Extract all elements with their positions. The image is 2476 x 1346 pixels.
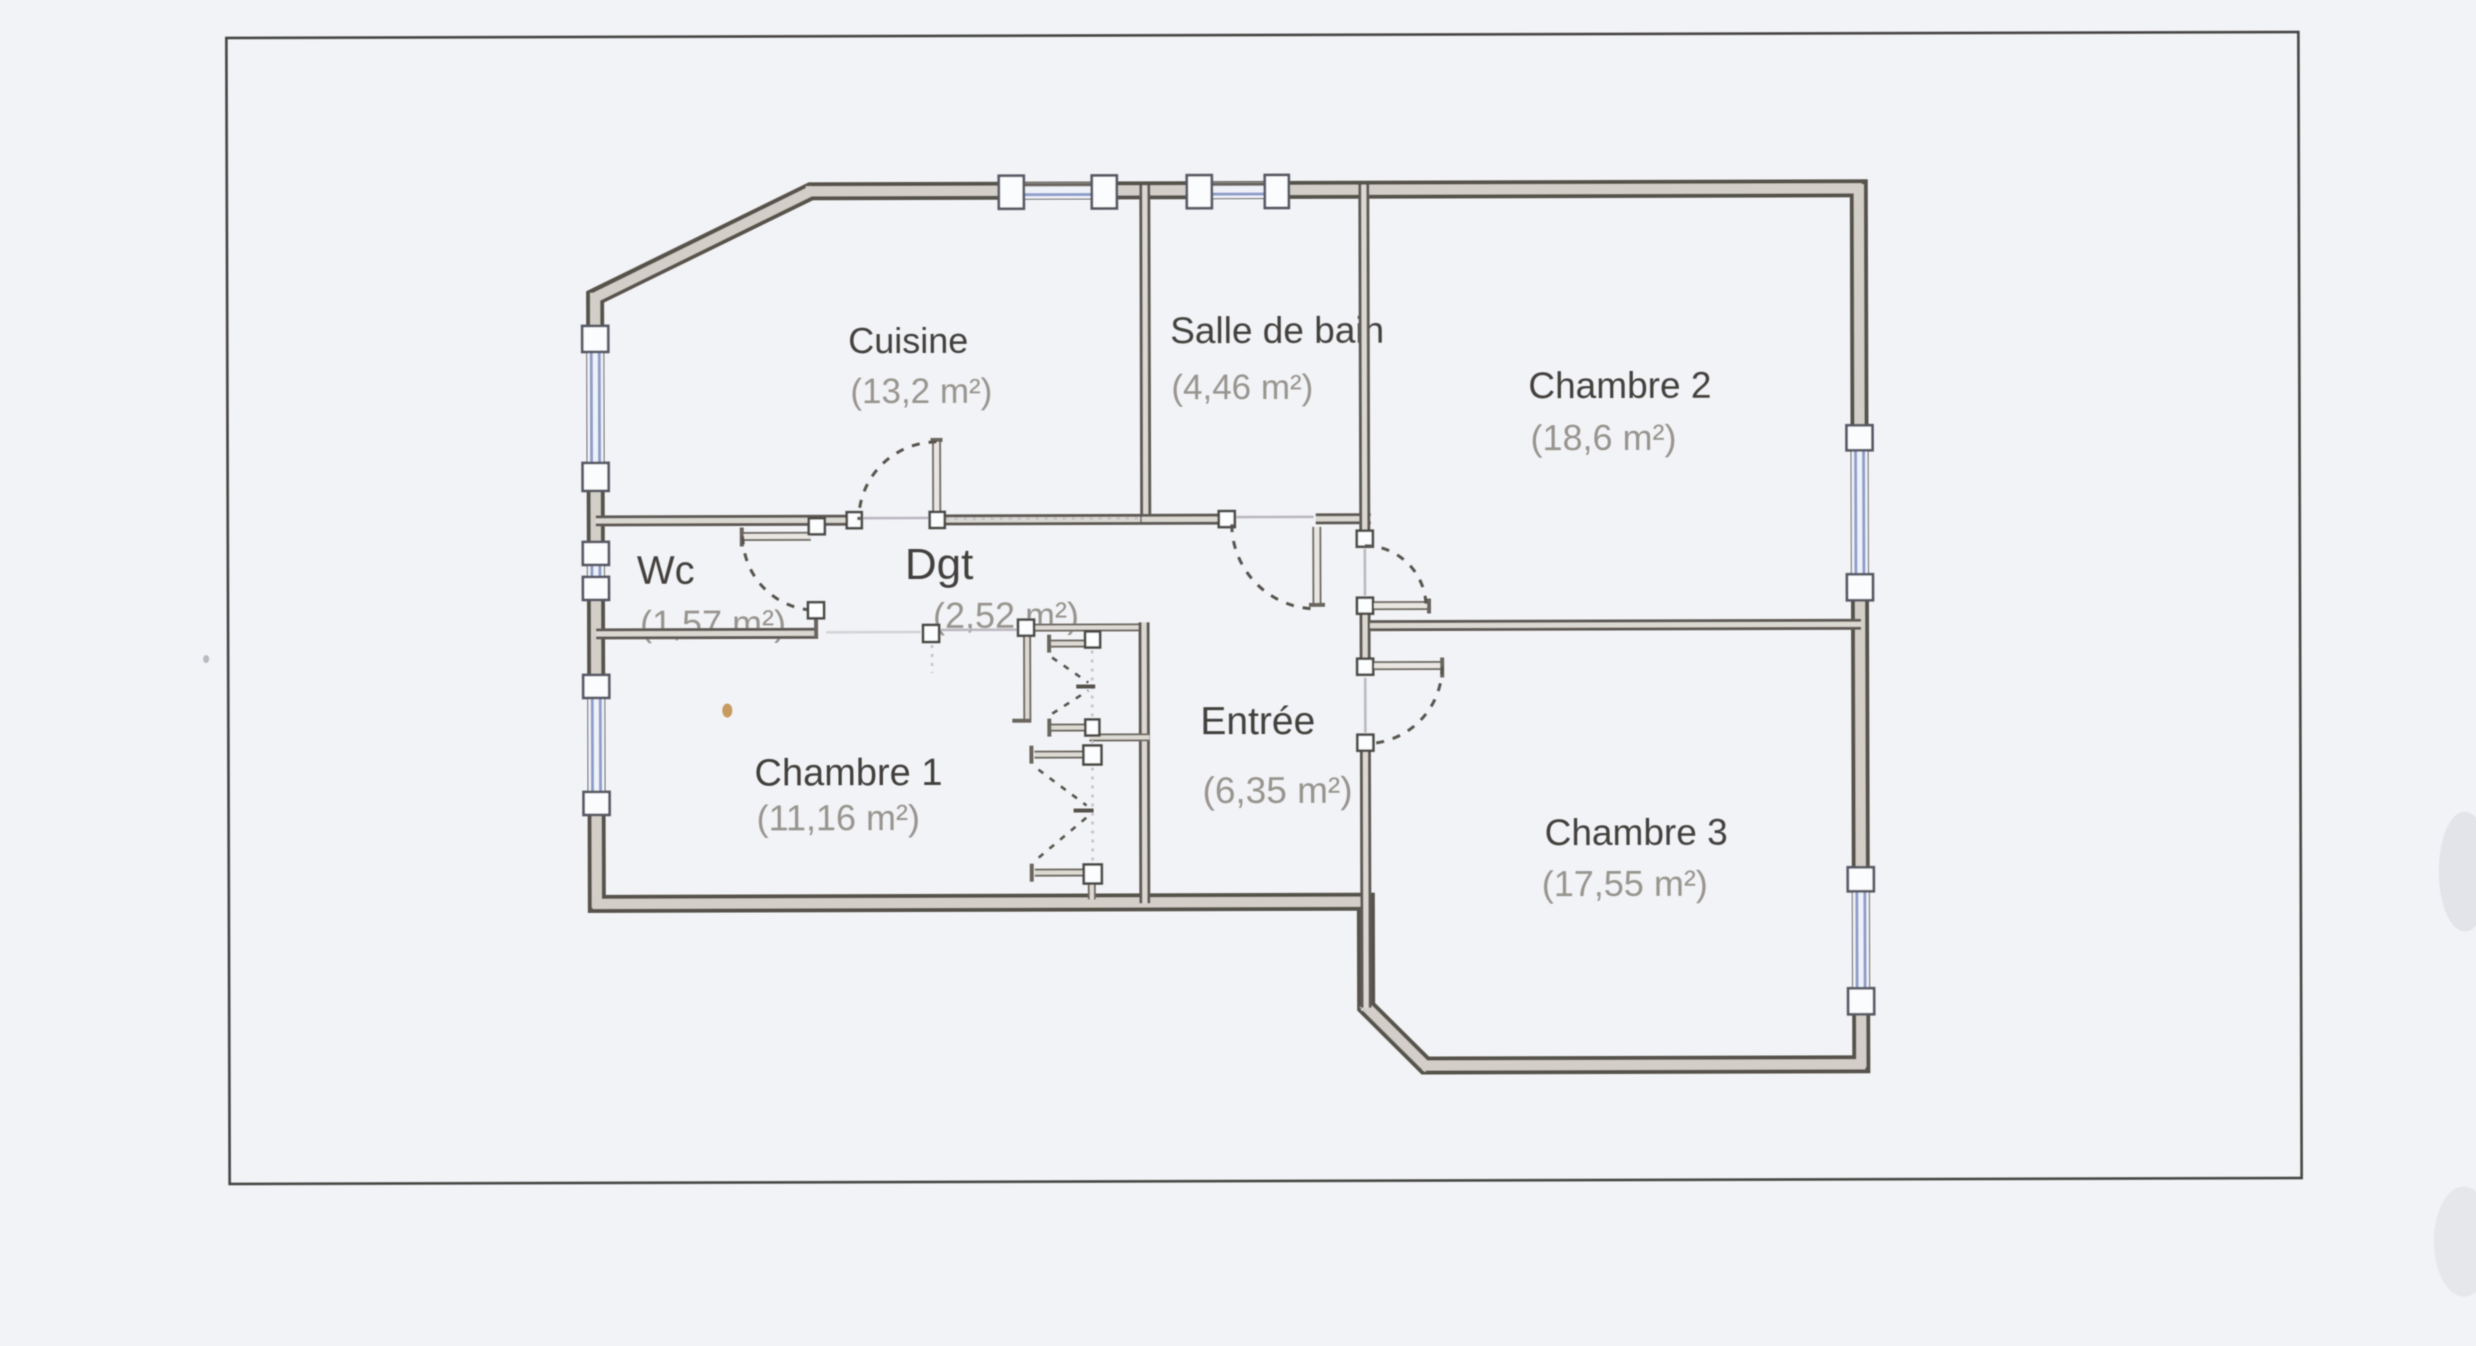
svg-text:(4,46 m²): (4,46 m²): [1171, 368, 1313, 407]
svg-text:Salle de bain: Salle de bain: [1170, 310, 1384, 352]
svg-text:(17,55 m²): (17,55 m²): [1542, 863, 1708, 904]
svg-text:(18,6 m²): (18,6 m²): [1530, 417, 1676, 458]
svg-text:Cuisine: Cuisine: [848, 320, 968, 361]
svg-text:(13,2 m²): (13,2 m²): [850, 372, 992, 411]
svg-text:(6,35 m²): (6,35 m²): [1202, 770, 1352, 811]
svg-text:Chambre 2: Chambre 2: [1528, 365, 1711, 407]
svg-text:Chambre 1: Chambre 1: [754, 752, 942, 795]
svg-text:Wc: Wc: [637, 549, 695, 593]
svg-text:Entrée: Entrée: [1200, 700, 1315, 743]
svg-text:Dgt: Dgt: [905, 540, 974, 589]
svg-text:(11,16 m²): (11,16 m²): [757, 797, 920, 838]
svg-text:Chambre 3: Chambre 3: [1545, 812, 1728, 854]
